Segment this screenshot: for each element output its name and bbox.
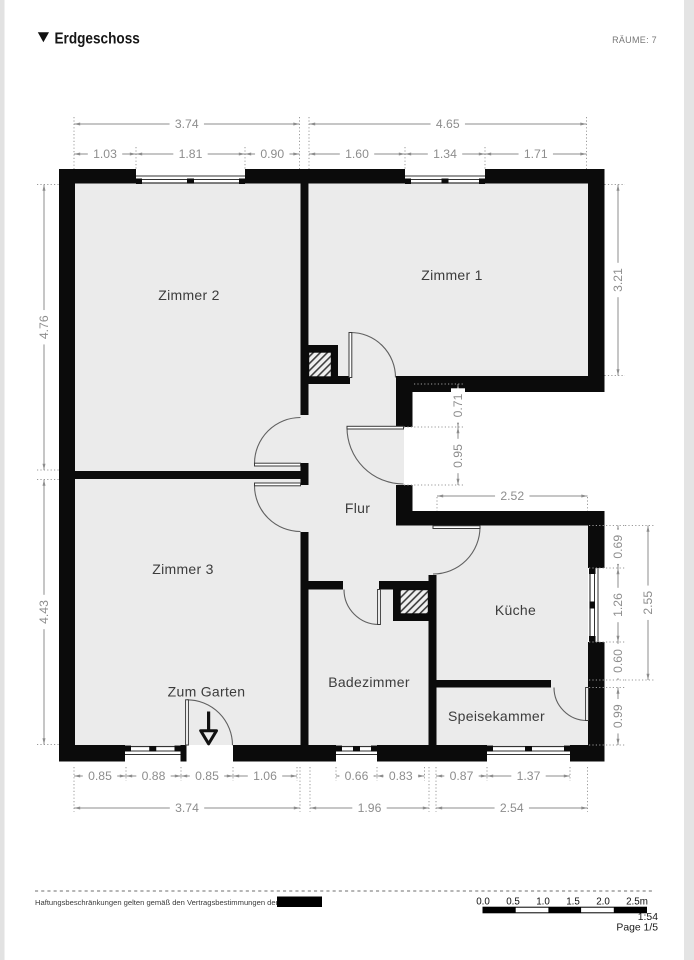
svg-text:1.5: 1.5 xyxy=(566,897,580,908)
svg-text:1.37: 1.37 xyxy=(517,769,541,783)
svg-text:2.54: 2.54 xyxy=(500,801,524,815)
svg-text:Zimmer 3: Zimmer 3 xyxy=(152,561,214,577)
svg-text:Zimmer 2: Zimmer 2 xyxy=(158,287,220,303)
svg-text:1.26: 1.26 xyxy=(611,593,625,617)
svg-text:Zum Garten: Zum Garten xyxy=(168,684,246,700)
svg-text:4.76: 4.76 xyxy=(37,315,51,339)
svg-text:2.0: 2.0 xyxy=(596,897,610,908)
svg-text:Zimmer 1: Zimmer 1 xyxy=(421,267,483,283)
svg-text:0.71: 0.71 xyxy=(451,393,465,417)
svg-text:0.5: 0.5 xyxy=(506,897,520,908)
svg-text:1.96: 1.96 xyxy=(358,801,382,815)
svg-text:0.95: 0.95 xyxy=(451,444,465,468)
svg-text:4.65: 4.65 xyxy=(436,117,460,131)
svg-text:Badezimmer: Badezimmer xyxy=(328,674,410,690)
svg-text:1.03: 1.03 xyxy=(93,147,117,161)
svg-text:0.60: 0.60 xyxy=(611,649,625,673)
svg-text:3.74: 3.74 xyxy=(175,801,199,815)
svg-text:3.74: 3.74 xyxy=(175,117,199,131)
svg-text:3.21: 3.21 xyxy=(611,268,625,292)
svg-text:1.34: 1.34 xyxy=(433,147,457,161)
svg-text:Erdgeschoss: Erdgeschoss xyxy=(55,31,140,48)
svg-text:1.0: 1.0 xyxy=(536,897,550,908)
svg-text:1.06: 1.06 xyxy=(253,769,277,783)
svg-text:0.87: 0.87 xyxy=(450,769,474,783)
svg-text:1.81: 1.81 xyxy=(179,147,203,161)
svg-text:1.71: 1.71 xyxy=(524,147,548,161)
svg-text:Haftungsbeschränkungen gelten: Haftungsbeschränkungen gelten gemäß den … xyxy=(35,898,279,907)
svg-text:0.88: 0.88 xyxy=(142,769,166,783)
svg-text:2.55: 2.55 xyxy=(641,591,655,615)
svg-text:0.85: 0.85 xyxy=(195,769,219,783)
svg-text:Küche: Küche xyxy=(495,602,536,618)
svg-text:0.99: 0.99 xyxy=(611,704,625,728)
svg-text:0.69: 0.69 xyxy=(611,535,625,559)
svg-text:0.66: 0.66 xyxy=(345,769,369,783)
svg-text:RÄUME: 7: RÄUME: 7 xyxy=(612,35,657,45)
svg-text:0.90: 0.90 xyxy=(260,147,284,161)
svg-text:Speisekammer: Speisekammer xyxy=(448,708,545,724)
svg-text:2.5m: 2.5m xyxy=(626,897,648,908)
svg-text:0.85: 0.85 xyxy=(88,769,112,783)
svg-text:2.52: 2.52 xyxy=(500,489,524,503)
svg-text:Flur: Flur xyxy=(345,500,370,516)
svg-text:4.43: 4.43 xyxy=(37,600,51,624)
svg-text:Page 1/5: Page 1/5 xyxy=(616,923,658,934)
svg-text:1.60: 1.60 xyxy=(345,147,369,161)
svg-text:0.0: 0.0 xyxy=(476,897,490,908)
svg-text:0.83: 0.83 xyxy=(389,769,413,783)
svg-text:1:54: 1:54 xyxy=(638,912,658,923)
